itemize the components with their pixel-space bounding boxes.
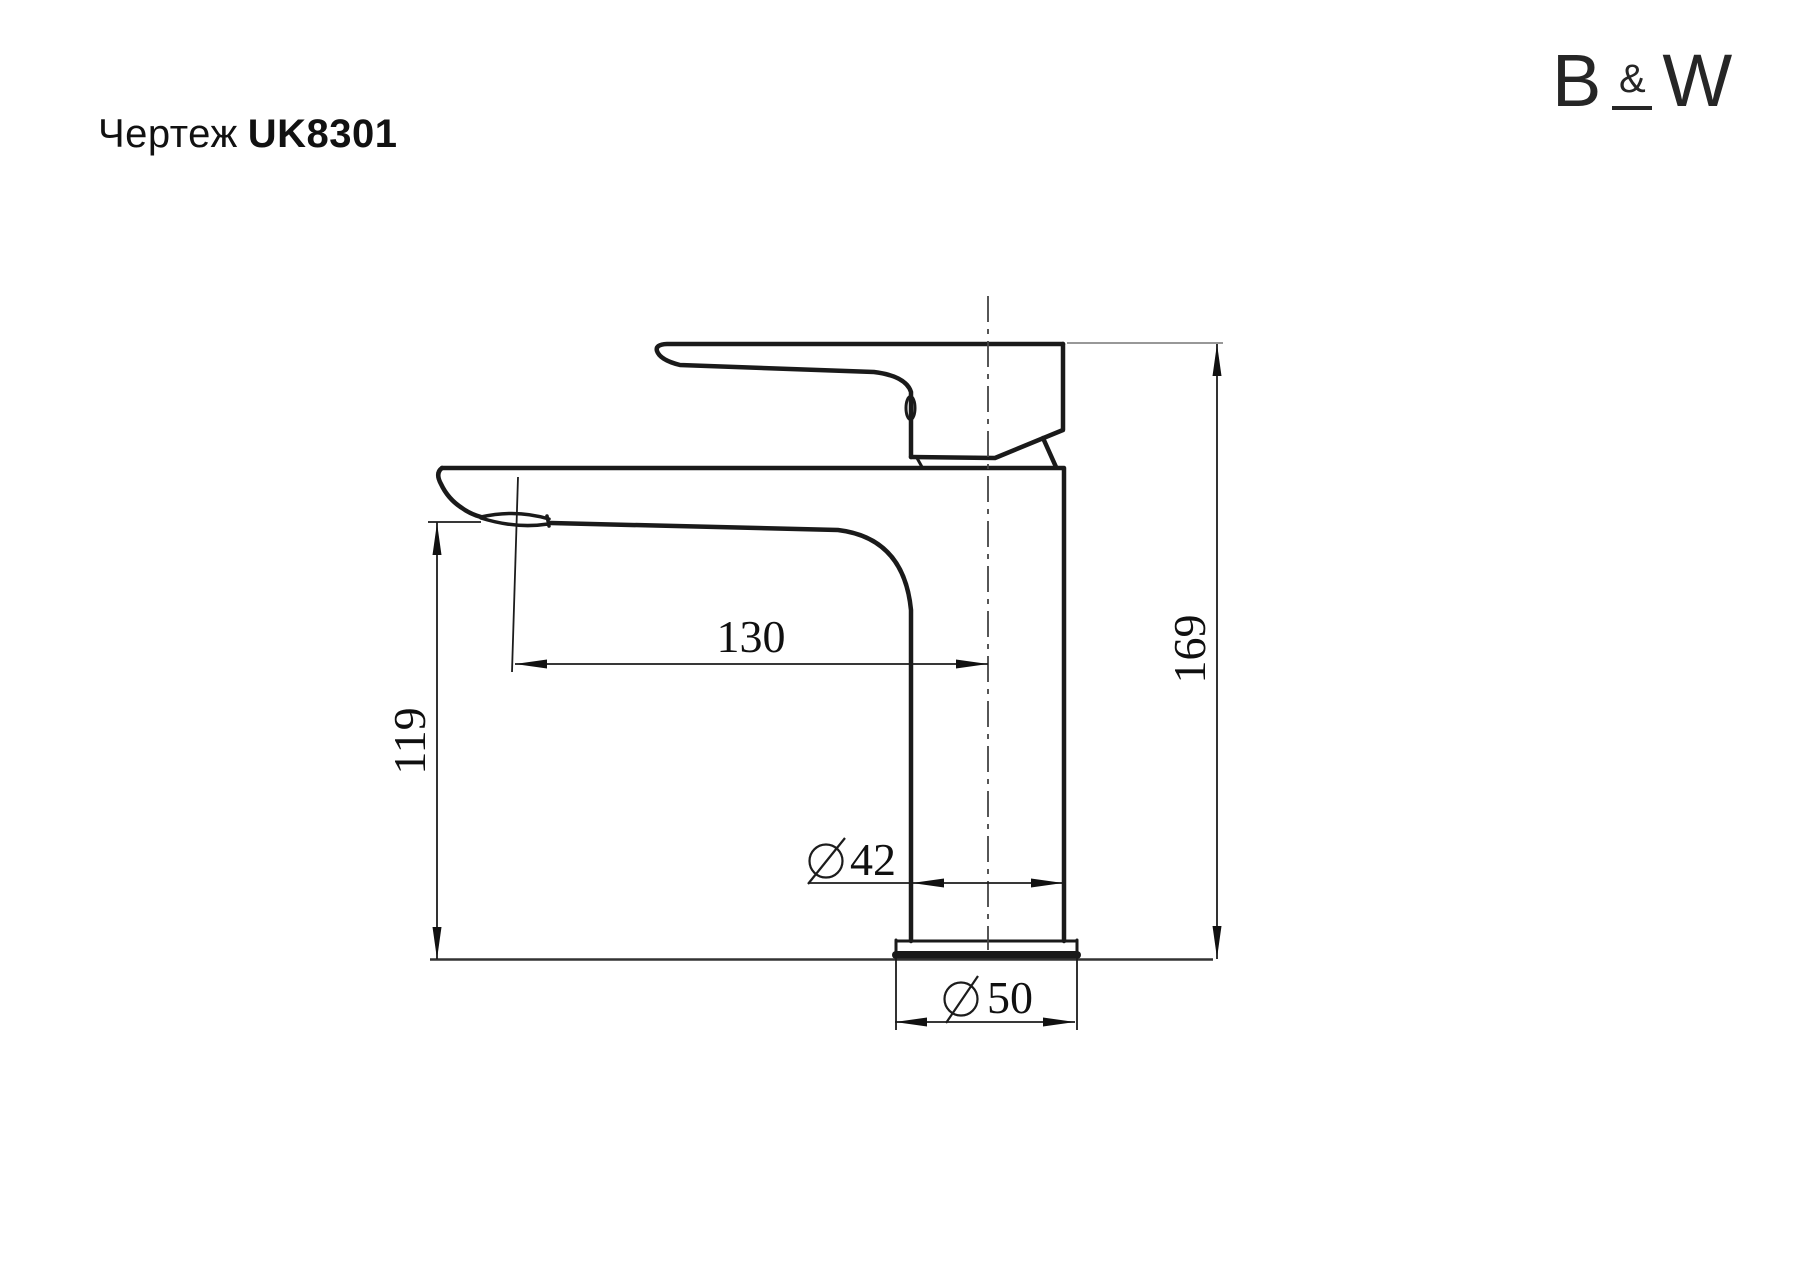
dim-label-119: 119 [387, 707, 433, 774]
arrow-50-left [895, 1018, 927, 1027]
arrow-169-down [1213, 926, 1222, 958]
spout-nose [438, 468, 481, 517]
diameter-symbol-icon [945, 983, 978, 1016]
dim-label-130: 130 [717, 614, 786, 660]
arrow-169-up [1213, 344, 1222, 376]
arrow-50-right [1043, 1018, 1075, 1027]
spout-top-and-column-right [442, 468, 1064, 941]
dimension-lines [428, 343, 1223, 1030]
arrow-119-down [433, 927, 442, 959]
faucet-drawing [0, 0, 1800, 1273]
arrow-42-left [912, 879, 944, 888]
dimension-arrows [433, 344, 1222, 1027]
arrow-119-up [433, 523, 442, 555]
arrow-130-left [515, 660, 547, 669]
arrow-42-right [1031, 879, 1063, 888]
dim-label-169: 169 [1167, 615, 1213, 684]
dim-130-extension [512, 477, 518, 672]
handle-outline [657, 344, 1063, 457]
aerator [481, 513, 549, 526]
body-right-edge [911, 344, 1063, 458]
base-flange [896, 940, 1077, 959]
page: ЧертежUK8301 B & W [0, 0, 1800, 1273]
dim-label-42: 42 [850, 837, 896, 883]
arrow-130-right [956, 660, 988, 669]
body-strut [1043, 438, 1056, 467]
dim-label-50: 50 [987, 975, 1033, 1021]
